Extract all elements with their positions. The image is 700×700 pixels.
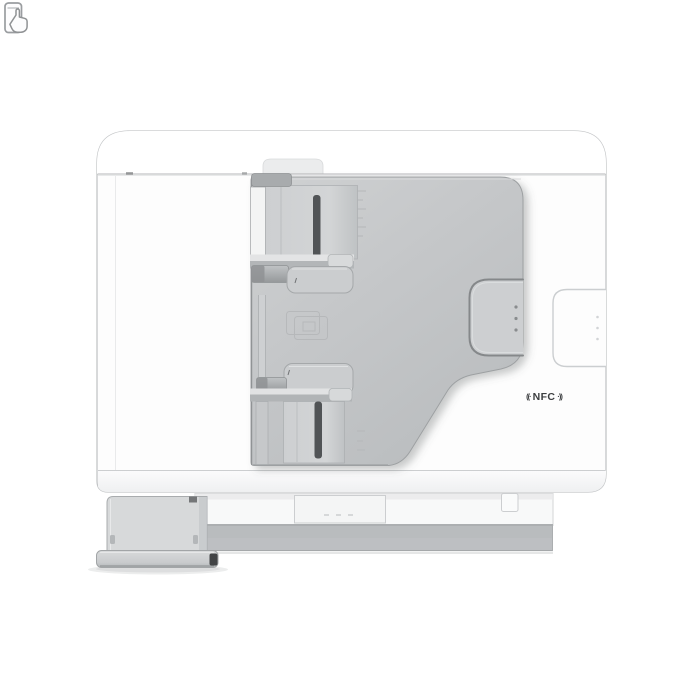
- rail-lower-end-cap: [329, 389, 352, 402]
- slider-slot-lower: [315, 402, 323, 459]
- hinge-panel-face: [107, 497, 207, 553]
- hinge-notch-left: [110, 535, 115, 544]
- guide-post-strip: [256, 402, 268, 465]
- scanner-hinge-panel: [107, 497, 207, 553]
- guide-latch-upper-dark: [252, 266, 265, 283]
- guide-block-lower: [284, 402, 345, 464]
- foot-base: [97, 551, 219, 568]
- nfc-phone-tap-icon: [0, 0, 32, 42]
- slider-slot-upper: [313, 195, 321, 257]
- hinge-dark-mark: [189, 497, 197, 503]
- guide-track-strip: [259, 295, 265, 377]
- tray-clip-notch: [502, 494, 519, 512]
- guide-slider-upper[interactable]: [287, 267, 353, 294]
- adf-lift-handle: [470, 280, 524, 356]
- output-tray-recess: [295, 496, 386, 524]
- nfc-text: NFC: [533, 391, 556, 403]
- seam-latch-tick-left: [126, 172, 133, 175]
- top-latch-tab[interactable]: [252, 174, 292, 187]
- hinge-notch-right: [193, 535, 198, 544]
- base-band-lower-sheen: [206, 538, 553, 550]
- edge-slot-window: [251, 187, 266, 256]
- rail-upper-end-cap: [328, 255, 353, 268]
- product-photo-canvas: ((· NFC ·)): [0, 0, 700, 700]
- tray-grip-dots: [324, 514, 353, 516]
- hinge-right-shade: [199, 497, 207, 552]
- printer-base-tier: [195, 494, 553, 555]
- printer-illustration: [0, 0, 700, 700]
- paper-guide-lower: [250, 364, 353, 465]
- nfc-label: ((· NFC ·)): [516, 390, 572, 404]
- guide-block-upper: [266, 186, 358, 260]
- side-access-door: [553, 290, 606, 367]
- left-foot: [88, 551, 228, 575]
- base-band-ground-shadow: [206, 552, 553, 555]
- top-lid-strip: [97, 131, 607, 174]
- nfc-wave-right-icon: ·)): [557, 392, 562, 401]
- adf-top-hump: [263, 159, 323, 174]
- seam-latch-tick-right: [242, 172, 247, 175]
- body-bottom-band: [98, 471, 606, 492]
- nfc-wave-left-icon: ((·: [526, 392, 531, 401]
- foot-dark-notch: [210, 554, 218, 566]
